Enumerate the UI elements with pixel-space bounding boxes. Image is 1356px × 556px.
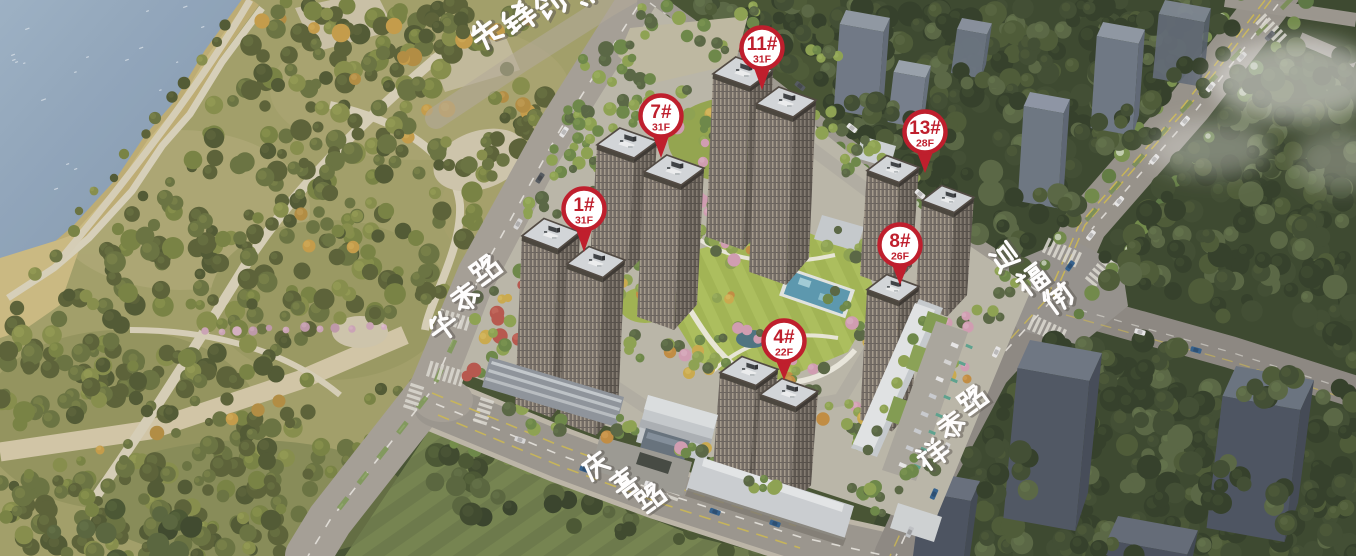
svg-text:22F: 22F [775, 347, 794, 359]
svg-text:13#: 13# [909, 118, 941, 139]
svg-text:7#: 7# [650, 102, 672, 123]
svg-text:28F: 28F [916, 138, 935, 150]
svg-text:31F: 31F [575, 215, 594, 227]
svg-text:31F: 31F [652, 122, 671, 134]
svg-text:1#: 1# [573, 195, 595, 216]
svg-text:4#: 4# [773, 327, 795, 348]
svg-text:31F: 31F [753, 54, 772, 66]
svg-text:11#: 11# [747, 34, 778, 55]
svg-text:26F: 26F [891, 251, 910, 263]
svg-text:8#: 8# [889, 231, 911, 252]
